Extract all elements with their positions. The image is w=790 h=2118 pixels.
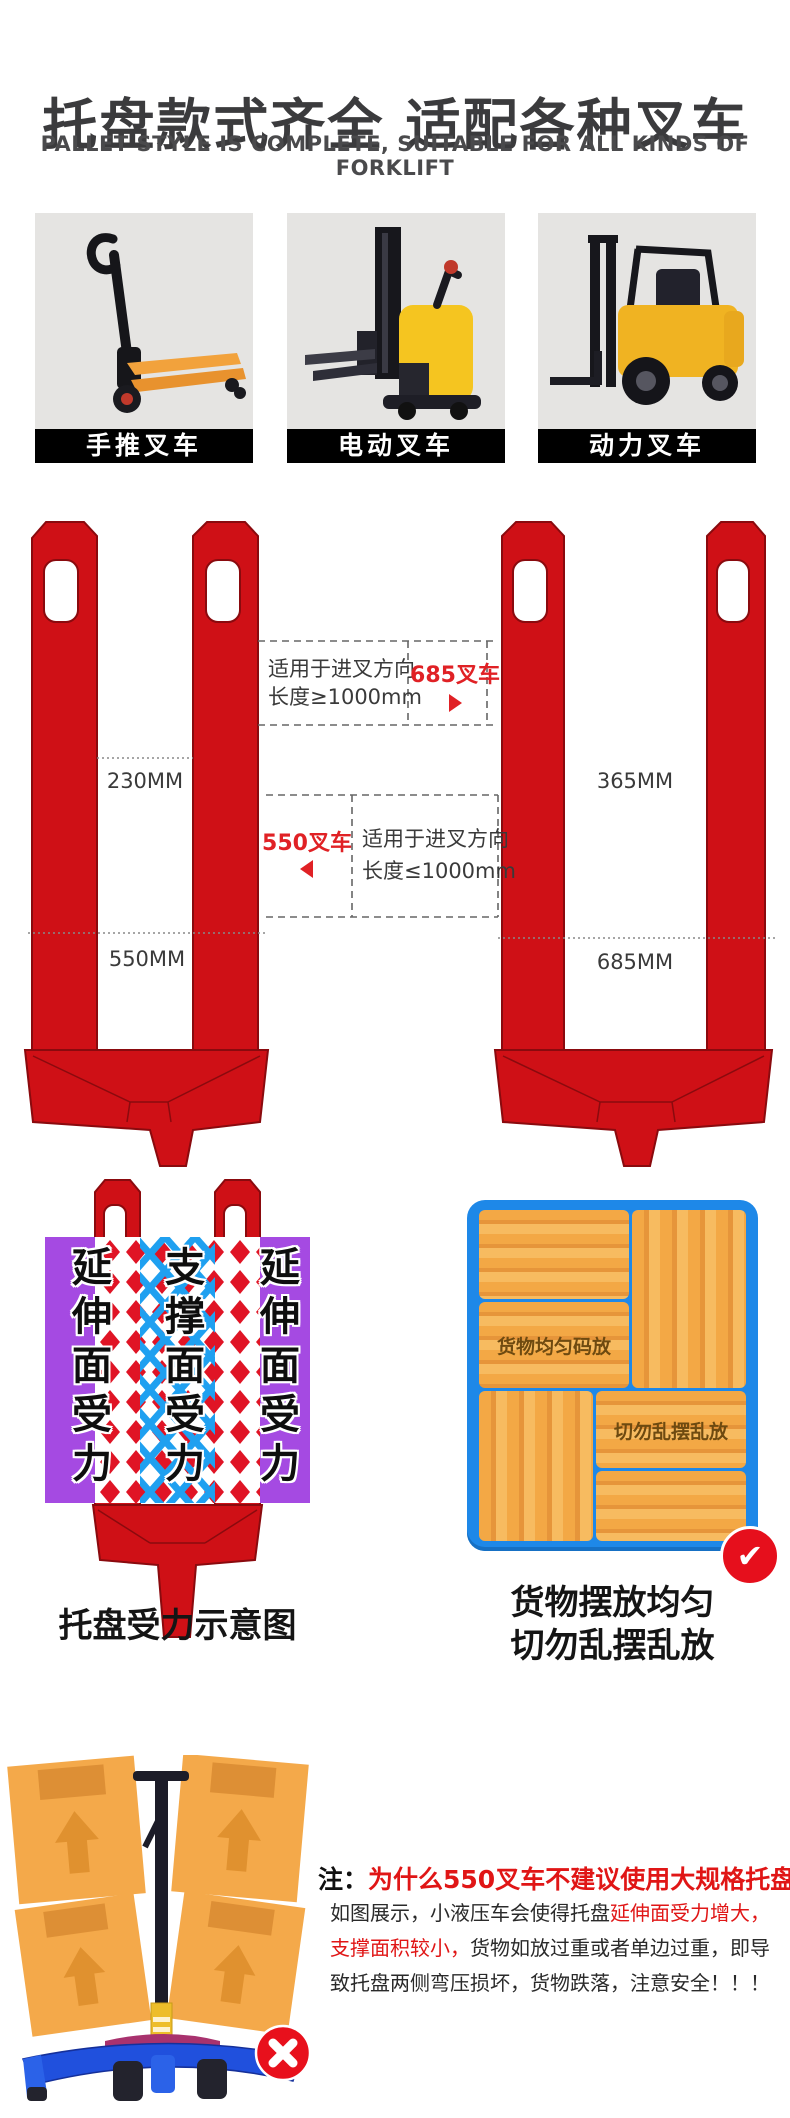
hand-pallet-truck-icon (35, 213, 253, 429)
page-subtitle: PALLET STYLE IS COMPLETE, SUITABLE FOR A… (0, 132, 790, 180)
good-placement-label: 货物均匀码放 (479, 1332, 629, 1359)
note-line-3: 致托盘两侧弯压损坏，货物跌落，注意安全！！！ (330, 1966, 790, 2001)
left-outer-width-label: 550MM (109, 947, 185, 971)
arrow-left-icon (300, 860, 313, 878)
diesel-forklift-image (538, 213, 756, 429)
stress-label-left: 延伸面受力 (59, 1246, 117, 1491)
right-pallet-foot (495, 1050, 772, 1166)
crate (479, 1391, 593, 1541)
note-line2-black: 货物如放过重或者单边过重，即导 (470, 1936, 770, 1960)
note-prefix: 注： (318, 1865, 368, 1894)
note-title: 注：为什么550叉车不建议使用大规格托盘 (318, 1860, 788, 1896)
crate (632, 1210, 746, 1388)
product-label-hand-pallet-truck: 手推叉车 (35, 429, 253, 463)
pallet-handle-holes (44, 560, 749, 622)
note-line-2: 支撑面积较小，货物如放过重或者单边过重，即导 (330, 1931, 790, 1966)
diesel-forklift-icon (538, 213, 756, 429)
fork-550-label: 550叉车 (262, 830, 352, 856)
note-title-text: 为什么550叉车不建议使用大规格托盘 (368, 1865, 790, 1894)
bottom-note-line2: 长度≤1000mm (362, 859, 516, 883)
note-line2-red: 支撑面积较小， (330, 1936, 470, 1960)
cross-icon (256, 2026, 310, 2080)
stress-label-center: 支撑面受力 (152, 1246, 210, 1491)
bottom-note-line1: 适用于进叉方向 (362, 827, 509, 851)
left-pallet-foot (25, 1050, 268, 1166)
note-line1-black: 如图展示，小液压车会使得托盘 (330, 1901, 610, 1925)
right-outer-width-label: 685MM (597, 950, 673, 974)
top-note-line1: 适用于进叉方向 (268, 657, 415, 681)
crate (479, 1210, 629, 1299)
electric-stacker-icon (287, 213, 505, 429)
electric-stacker-image (287, 213, 505, 429)
page-canvas: 托盘款式齐全 适配各种叉车 PALLET STYLE IS COMPLETE, … (0, 0, 790, 2118)
crate-bad: 切勿乱摆乱放 (596, 1391, 746, 1468)
cargo-caption-line2: 切勿乱摆乱放 (467, 1625, 758, 1668)
note-line1-red: 延伸面受力增大， (610, 1901, 770, 1925)
crate (596, 1471, 746, 1541)
stress-caption: 托盘受力示意图 (45, 1598, 310, 1647)
note-paragraph: 如图展示，小液压车会使得托盘延伸面受力增大， 支撑面积较小，货物如放过重或者单边… (330, 1896, 790, 2001)
arrow-right-icon (449, 694, 462, 712)
check-icon: ✔ (720, 1526, 780, 1586)
left-inner-width-label: 230MM (107, 769, 183, 793)
product-label-diesel-forklift: 动力叉车 (538, 429, 756, 463)
right-inner-width-label: 365MM (597, 769, 673, 793)
cargo-caption-line1: 货物摆放均匀 (467, 1582, 758, 1625)
stress-label-right: 延伸面受力 (247, 1246, 305, 1491)
bad-placement-label: 切勿乱摆乱放 (596, 1417, 746, 1444)
product-label-electric-stacker: 电动叉车 (287, 429, 505, 463)
top-note-line2: 长度≥1000mm (268, 685, 422, 709)
cargo-caption: 货物摆放均匀 切勿乱摆乱放 (467, 1582, 758, 1668)
pallet-measurement-diagram: 适用于进叉方向 长度≥1000mm 685叉车 230MM 550叉车 适用于进… (0, 510, 790, 1175)
cargo-placement-box: 货物均匀码放 切勿乱摆乱放 (467, 1200, 758, 1551)
note-line-1: 如图展示，小液压车会使得托盘延伸面受力增大， (330, 1896, 790, 1931)
overload-warning-illustration (5, 1755, 315, 2105)
fork-685-label: 685叉车 (410, 662, 500, 688)
hand-pallet-truck-image (35, 213, 253, 429)
note-line3-text: 致托盘两侧弯压损坏，货物跌落，注意安全！！！ (330, 1971, 770, 1995)
crate-good: 货物均匀码放 (479, 1302, 629, 1388)
